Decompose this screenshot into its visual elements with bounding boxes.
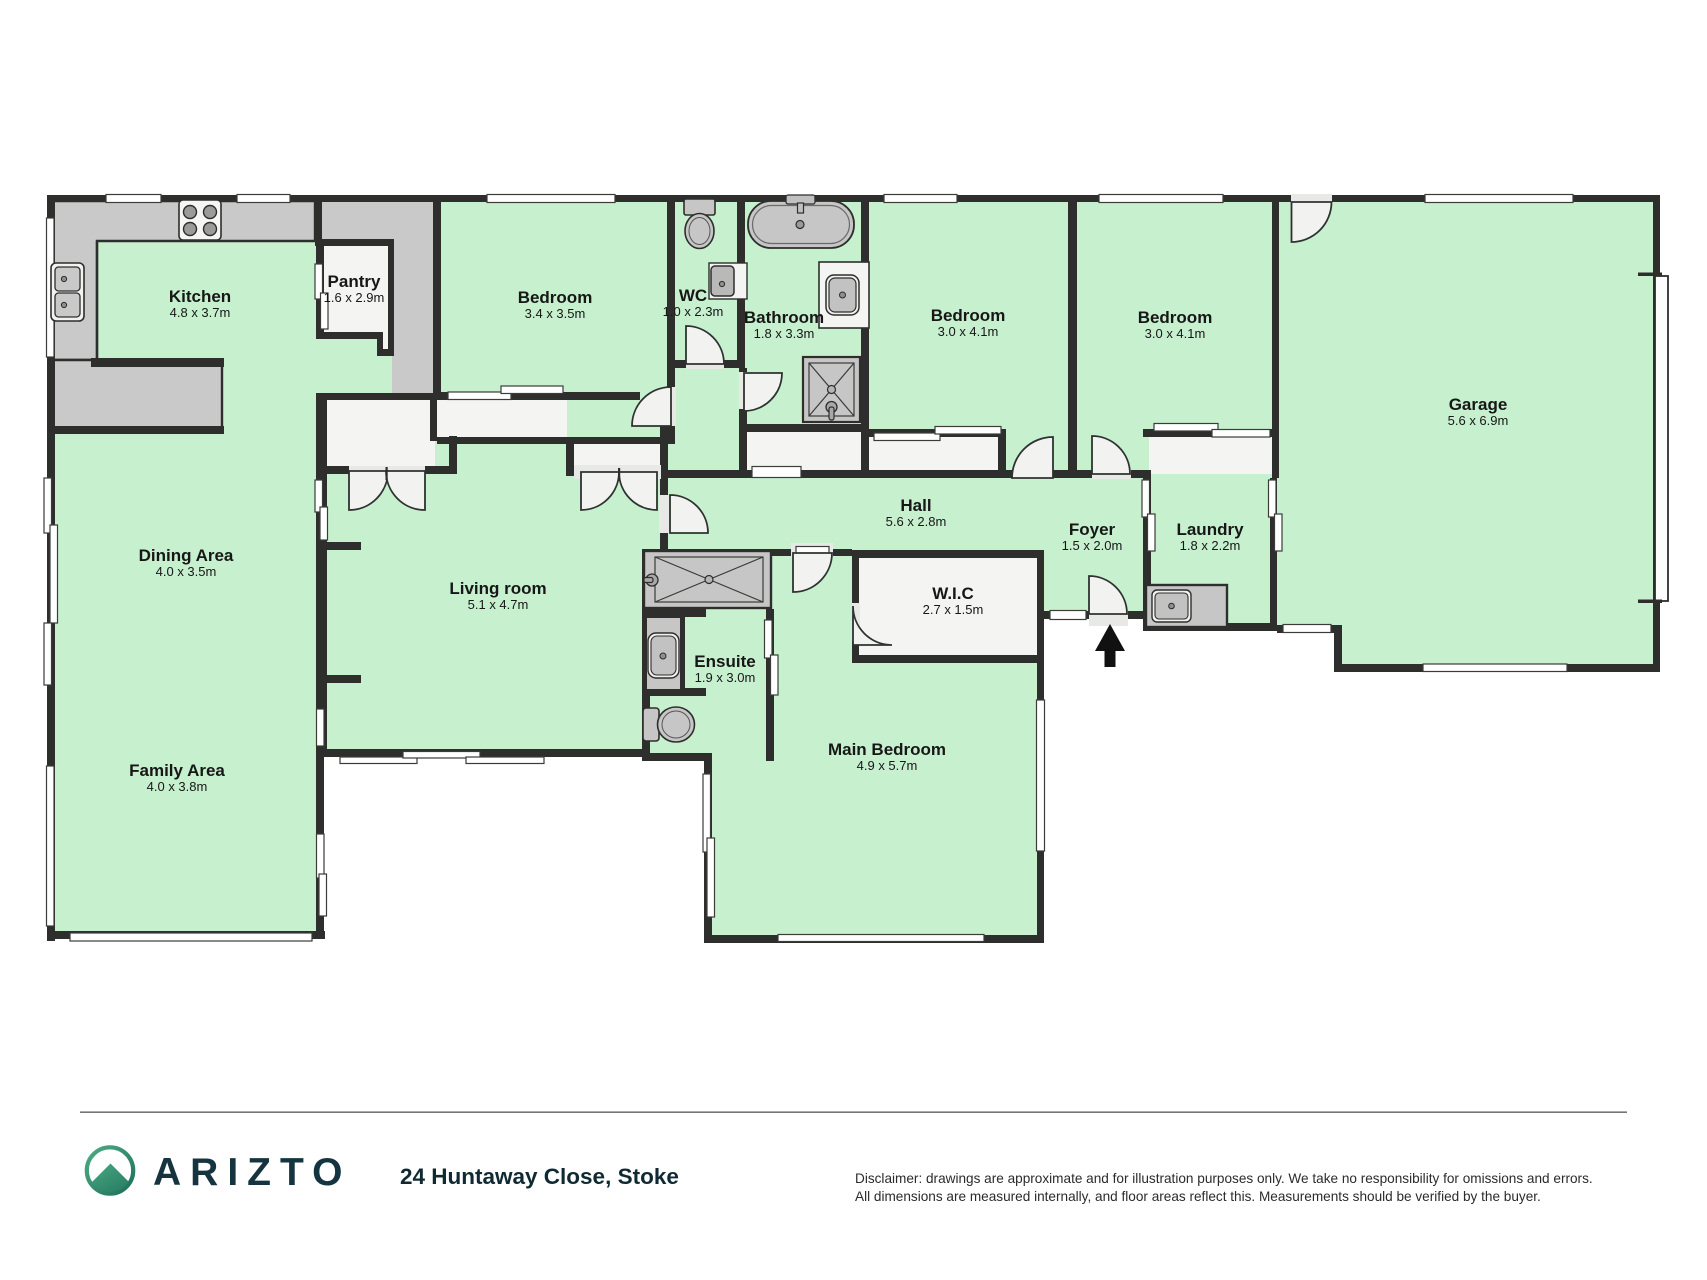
svg-text:4.8 x 3.7m: 4.8 x 3.7m bbox=[170, 305, 231, 320]
svg-text:ARIZTO: ARIZTO bbox=[153, 1151, 351, 1194]
svg-text:Ensuite: Ensuite bbox=[694, 652, 755, 671]
svg-text:4.9 x 5.7m: 4.9 x 5.7m bbox=[857, 758, 918, 773]
svg-text:Dining Area: Dining Area bbox=[139, 546, 234, 565]
svg-text:Main Bedroom: Main Bedroom bbox=[828, 740, 946, 759]
svg-text:Disclaimer: drawings are appro: Disclaimer: drawings are approximate and… bbox=[855, 1171, 1593, 1186]
svg-text:Kitchen: Kitchen bbox=[169, 287, 231, 306]
svg-text:Bedroom: Bedroom bbox=[931, 306, 1006, 325]
svg-text:Living room: Living room bbox=[449, 579, 546, 598]
svg-text:Bedroom: Bedroom bbox=[1138, 308, 1213, 327]
svg-text:WC: WC bbox=[679, 286, 707, 305]
svg-text:Garage: Garage bbox=[1449, 395, 1508, 414]
svg-text:Foyer: Foyer bbox=[1069, 520, 1116, 539]
svg-text:3.0 x 4.1m: 3.0 x 4.1m bbox=[1145, 326, 1206, 341]
svg-text:1.6 x 2.9m: 1.6 x 2.9m bbox=[324, 290, 385, 305]
svg-text:24 Huntaway Close, Stoke: 24 Huntaway Close, Stoke bbox=[400, 1164, 679, 1189]
svg-text:Bathroom: Bathroom bbox=[744, 308, 824, 327]
svg-text:4.0 x 3.8m: 4.0 x 3.8m bbox=[147, 779, 208, 794]
svg-text:1.0 x 2.3m: 1.0 x 2.3m bbox=[663, 304, 724, 319]
svg-text:Laundry: Laundry bbox=[1176, 520, 1244, 539]
svg-text:Bedroom: Bedroom bbox=[518, 288, 593, 307]
svg-text:4.0 x 3.5m: 4.0 x 3.5m bbox=[156, 564, 217, 579]
svg-text:1.8 x 3.3m: 1.8 x 3.3m bbox=[754, 326, 815, 341]
svg-text:5.1 x 4.7m: 5.1 x 4.7m bbox=[468, 597, 529, 612]
svg-text:5.6 x 6.9m: 5.6 x 6.9m bbox=[1448, 413, 1509, 428]
svg-text:1.9 x 3.0m: 1.9 x 3.0m bbox=[695, 670, 756, 685]
svg-text:Family Area: Family Area bbox=[129, 761, 225, 780]
svg-text:All dimensions are measured in: All dimensions are measured internally, … bbox=[855, 1189, 1541, 1204]
svg-text:W.I.C: W.I.C bbox=[932, 584, 974, 603]
svg-text:3.4 x 3.5m: 3.4 x 3.5m bbox=[525, 306, 586, 321]
svg-text:Pantry: Pantry bbox=[328, 272, 381, 291]
svg-text:2.7 x 1.5m: 2.7 x 1.5m bbox=[923, 602, 984, 617]
svg-text:3.0 x 4.1m: 3.0 x 4.1m bbox=[938, 324, 999, 339]
svg-text:1.8 x 2.2m: 1.8 x 2.2m bbox=[1180, 538, 1241, 553]
svg-text:Hall: Hall bbox=[900, 496, 931, 515]
svg-text:5.6 x 2.8m: 5.6 x 2.8m bbox=[886, 514, 947, 529]
svg-text:1.5 x 2.0m: 1.5 x 2.0m bbox=[1062, 538, 1123, 553]
